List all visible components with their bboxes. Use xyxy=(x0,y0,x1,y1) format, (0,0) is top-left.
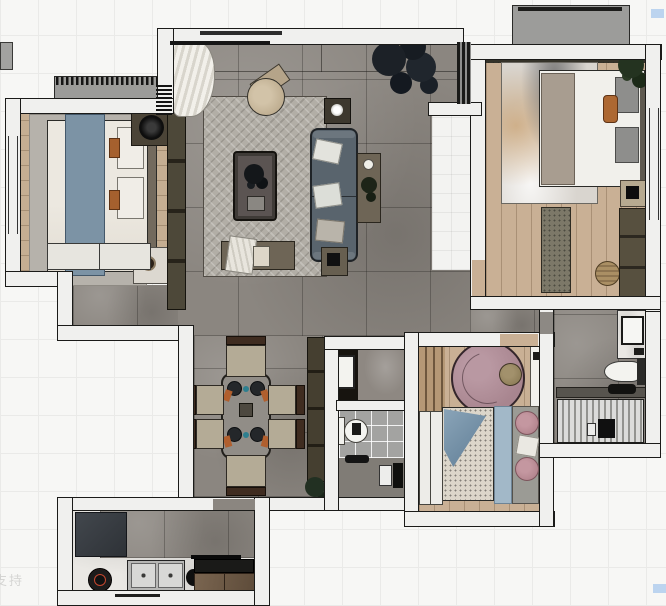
cooktop xyxy=(194,559,254,573)
wall-bathroom-middle-divider xyxy=(336,400,406,411)
wall-dining-west xyxy=(178,325,194,511)
highlight-artifact-bottom-right xyxy=(653,584,666,593)
chair-left-seat xyxy=(196,385,224,415)
bed-left-orange-pillow xyxy=(109,138,120,158)
range-cabinet-divider xyxy=(224,574,225,590)
chair-left-seat xyxy=(196,419,224,449)
window-living-top-line xyxy=(170,41,270,45)
wall-kitchen-bottom xyxy=(57,590,270,606)
pink-pillow xyxy=(515,411,539,435)
table-centerpiece xyxy=(239,403,253,417)
chair-right-seat xyxy=(268,419,296,449)
glass-door-corridor xyxy=(457,42,471,104)
bed-right-orange-pillow xyxy=(603,95,618,123)
sofa-pillow xyxy=(313,182,343,209)
toilet-right-bowl xyxy=(604,361,639,382)
chair-top-rail xyxy=(226,336,266,345)
entry-door-hinge-marks xyxy=(156,85,172,115)
shower-mixer-right xyxy=(598,419,615,438)
wall-living-bottom-west xyxy=(57,325,194,341)
wall-bedroom-left-top xyxy=(5,98,174,114)
chair-bottom-seat xyxy=(226,455,266,487)
door-opening-bedroom-right xyxy=(472,260,485,296)
bed-left-orange-pillow xyxy=(109,190,120,210)
wall-bedroom-small-west xyxy=(404,332,419,527)
cup-teal xyxy=(243,386,249,392)
bay-protrusion-hatch xyxy=(56,77,158,85)
sofa-armrest xyxy=(313,131,355,138)
gas-burner xyxy=(88,568,112,592)
wall-bathroom-right-bottom xyxy=(539,443,661,458)
bed-small-blue-blanket xyxy=(494,406,512,504)
lamp-black xyxy=(139,115,164,140)
chair-right-rail xyxy=(296,419,305,449)
floor-seam xyxy=(174,71,470,72)
vanity-sink-right xyxy=(621,316,644,345)
sink-basin xyxy=(131,563,156,588)
side-table-blossom xyxy=(331,104,343,116)
shower-mixer-middle xyxy=(393,463,403,488)
coffee-table-tray xyxy=(247,196,265,211)
window-living-top-line-outer xyxy=(200,31,282,35)
door-opening-kitchen xyxy=(213,499,255,510)
corner-table-items xyxy=(327,253,340,266)
shower-threshold-items xyxy=(345,455,369,463)
bed-right-pillow xyxy=(615,77,639,113)
floor-plan: 支持 xyxy=(0,0,666,606)
sink-basin xyxy=(158,563,183,588)
hall-to-bathroom-floor xyxy=(470,310,539,334)
wardrobe-small-line xyxy=(430,412,431,504)
door-opening-bedroom-small xyxy=(500,334,538,346)
bed-right-taupe-throw xyxy=(541,73,575,185)
exterior-notch xyxy=(0,42,13,70)
cup-teal xyxy=(243,432,249,438)
white-pillow-bundle xyxy=(515,434,539,457)
nightstand-gadgets xyxy=(626,186,639,199)
side-table-cup xyxy=(363,159,374,170)
wardrobe-strip-living-wall xyxy=(167,107,186,310)
window-bedroom-left xyxy=(8,136,18,234)
chair-top-seat xyxy=(226,345,266,377)
sofa-throw xyxy=(315,219,345,244)
wall-bedroom-right-top xyxy=(470,44,662,60)
window-kitchen-line xyxy=(115,594,160,597)
entry-corridor-floor xyxy=(432,112,470,270)
wall-kitchen-east xyxy=(254,497,270,606)
living-room-floor-extension xyxy=(73,285,178,327)
vanity-marble-counter xyxy=(358,343,404,403)
chair-right-rail xyxy=(296,385,305,415)
vanity-items-right xyxy=(634,348,644,355)
highlight-artifact-top-right xyxy=(651,9,664,18)
plant-dining xyxy=(305,477,325,497)
pouf-small-bedroom xyxy=(499,363,522,386)
wall-bedroom-small-bottom xyxy=(404,511,555,527)
floor-plant-living xyxy=(372,42,406,76)
wall-bathroom-right-east xyxy=(645,296,661,458)
wardrobe-small-bedroom xyxy=(419,411,443,505)
shower-faucet-right xyxy=(608,384,636,394)
balcony-slab xyxy=(512,5,630,47)
chair-right-seat xyxy=(268,385,296,415)
shower-handle-right xyxy=(587,423,596,436)
toilet-middle-bottle xyxy=(352,423,361,435)
coffee-table-plant xyxy=(244,164,264,184)
bed-right-pillow xyxy=(615,127,639,163)
slat-panel xyxy=(419,347,445,413)
bed-left-pillow xyxy=(117,177,144,219)
round-armchair xyxy=(247,78,285,116)
fridge xyxy=(75,512,127,557)
side-table-plant xyxy=(361,177,377,193)
wall-dining-east xyxy=(324,336,339,511)
dresser-door-line xyxy=(99,244,100,269)
door-opening-bathroom-right xyxy=(540,312,553,334)
pink-pillow xyxy=(515,457,539,481)
bench-book xyxy=(253,246,270,267)
watermark-text: 支持 xyxy=(0,570,24,589)
shower-plate-middle xyxy=(379,465,392,486)
wall-corridor-stub xyxy=(428,102,482,116)
bench-runner-right xyxy=(541,207,571,293)
window-bedroom-right xyxy=(649,108,659,220)
chair-bottom-rail xyxy=(226,487,266,496)
wardrobe-right xyxy=(619,208,646,298)
floor-seam xyxy=(321,45,322,72)
woven-pouf xyxy=(595,261,620,286)
wall-bedroom-right-bottom xyxy=(470,296,661,310)
balcony-edge-line xyxy=(518,7,622,11)
